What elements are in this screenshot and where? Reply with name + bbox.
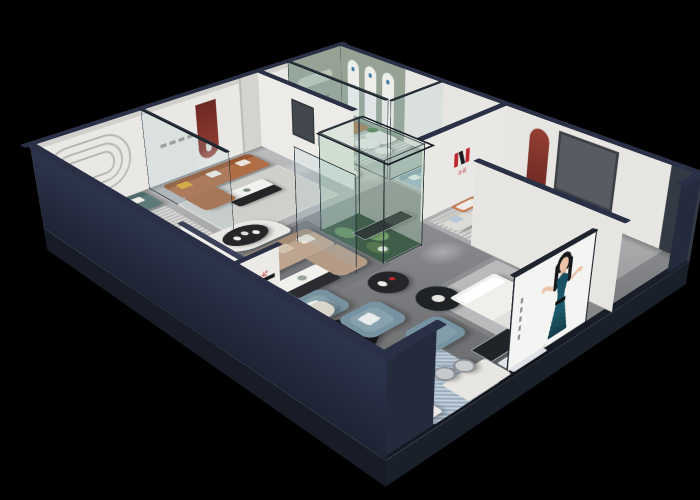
brand-logo-group: 华悦 [450,141,477,181]
logo-bar-black [459,151,465,165]
logo-bar-red2 [465,147,469,162]
poster-caption-marks [518,296,524,340]
showroom-render: { "scene": { "title": "3D isometric cuta… [0,0,700,500]
dark-art-panel [291,98,314,144]
model-hand [542,287,546,294]
table-decor [388,276,397,281]
logo-bar-red [454,152,458,168]
arch-logo-mark [386,80,389,85]
white-vase [376,280,390,287]
table-bowl [429,294,447,304]
table-decor [295,274,308,281]
white-vase [251,229,262,234]
arch-logo-mark [369,73,372,78]
arch-logo-mark [352,67,355,72]
table-decor [242,188,252,193]
showroom-floor: 华悦 华悦 [44,116,690,460]
model-hand [579,265,583,272]
white-vase [239,231,250,236]
white-vase [232,236,243,242]
